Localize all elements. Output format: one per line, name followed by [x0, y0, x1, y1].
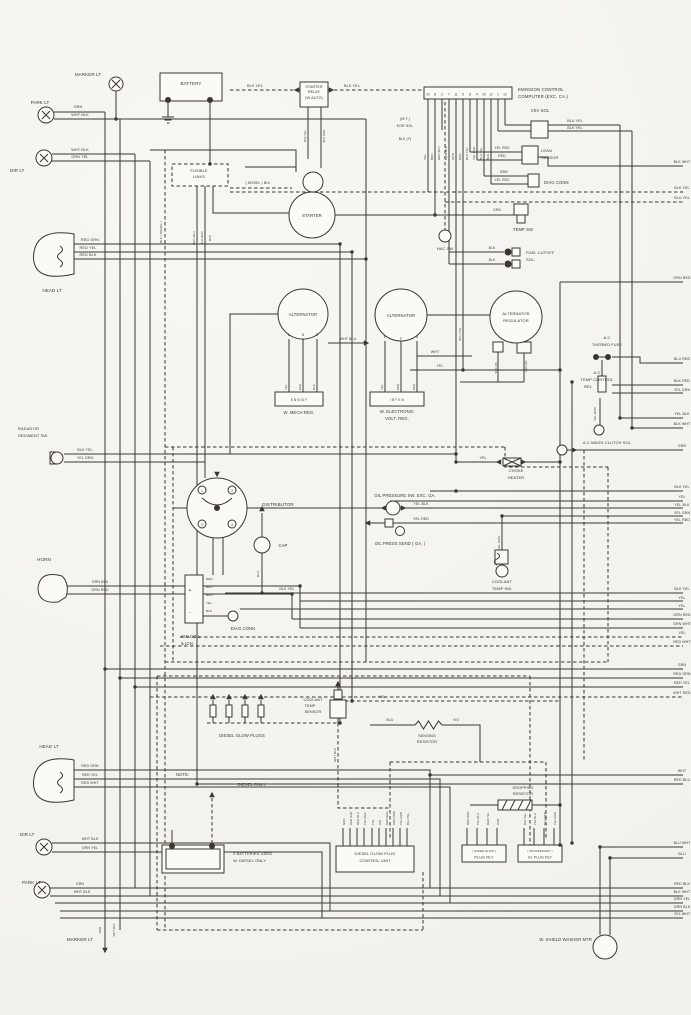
junction-dot	[618, 416, 621, 419]
wire-label: E B N IG F	[291, 398, 307, 402]
junction-dot	[260, 591, 263, 594]
wire-label: YEL GRN	[674, 511, 691, 515]
wire-label: YEL RED	[494, 178, 510, 182]
wire	[213, 186, 289, 213]
wire-label: WHT	[431, 350, 440, 354]
wire-label: RED BLU	[437, 146, 441, 160]
wire-label: BLK	[206, 609, 212, 613]
wire-label: YEL GRN	[674, 388, 691, 392]
elec-reg-label: W. ELECTRONIC	[380, 409, 414, 414]
wire-label: RED	[498, 154, 506, 158]
junction-dot	[570, 380, 573, 383]
wire-label: GRN	[98, 927, 102, 934]
wire-label: 1	[497, 93, 499, 97]
wire-label: 12	[503, 93, 507, 97]
sensing-resistor-label: SENSING	[418, 734, 436, 738]
diag-conn-box	[528, 174, 539, 187]
junction-dot	[364, 257, 367, 260]
fuel-cutoff-sol-2	[512, 260, 520, 268]
wire-label: GRN ORG	[392, 811, 396, 825]
wire-label: GRN	[493, 208, 501, 212]
diesel-only-label: DIESEL ONLY.	[238, 782, 267, 787]
wire-label: RED BLU	[192, 231, 196, 245]
wire-label: GRN	[678, 444, 687, 448]
thermo-fuse-end-2	[606, 355, 611, 360]
fuel-sol-pin-1	[505, 249, 511, 255]
wire-label: BLU YEL	[479, 147, 483, 160]
wire-label: YEL BLK	[413, 502, 429, 506]
wire-label: WHT BLK	[333, 748, 337, 762]
diagram-svg: MARKER LTPARK LTDIR LTHEAD LTGRNWHT BLKW…	[0, 0, 691, 1015]
hac-sw	[439, 230, 451, 242]
wire-label: BLU	[678, 852, 686, 856]
glow-plug-1	[210, 705, 216, 717]
wire-label: RED	[206, 577, 213, 581]
wire-label: BLK RED	[322, 130, 326, 143]
wire-label: BLK WHT	[674, 422, 691, 426]
ecu-label: EMISSION CONTROL	[518, 87, 564, 92]
fusible-links-label: FUSIBLE	[190, 168, 208, 173]
fuel-cutoff-label: FUEL CUTOFF	[526, 250, 555, 255]
arrow-marker	[294, 87, 299, 93]
head-lt-bottom-label: HEAD LT	[39, 744, 59, 749]
wire-label: GRN RED	[673, 613, 691, 617]
wire-label: WHT RED	[673, 691, 691, 695]
wire-label: BRN	[206, 593, 213, 597]
wire-label: WHT BLK	[112, 923, 116, 936]
coolant-sensor-label: COOLANT	[303, 698, 323, 702]
wire-label: RED GRN	[81, 238, 99, 242]
wire-label: RED YEL	[80, 246, 97, 250]
wire-label: YEL GRN	[593, 407, 597, 421]
wire-label: SOC (B)	[494, 362, 498, 373]
wire-label: I B F E B	[390, 398, 404, 402]
wire-label: BLK RED	[674, 379, 690, 383]
wire-label: YEL	[678, 495, 685, 499]
oil-press-send-label: OIL PRESS SEND ( GA. )	[375, 541, 426, 546]
wire-label: TEMP SW.	[492, 586, 512, 591]
diag-conn-2	[228, 611, 238, 621]
wire-label: BLK YEL	[674, 186, 689, 190]
oil-press-send-box	[385, 519, 393, 527]
wire-label: F	[400, 337, 402, 341]
alternator-1-label: ALTERNATOR	[289, 312, 317, 317]
coolant-sensor-stem	[334, 690, 342, 699]
wire-label: RED YEL	[674, 681, 690, 685]
wire-label: YEL	[678, 631, 685, 635]
battery2-terminal-2	[210, 844, 215, 849]
wire-label: ( DIESEL ) BLK	[246, 181, 271, 185]
wire-label: BLU	[387, 718, 394, 722]
wire-label: BLK YEL	[279, 587, 294, 591]
ign-coil-label: IGN COIL	[181, 634, 201, 639]
wire-label: GRN RED	[673, 276, 691, 280]
alt-reg-terminal-2	[517, 342, 531, 353]
ign-coil-box	[185, 575, 203, 623]
wire-label: BLK YEL	[77, 448, 92, 452]
temp-sw-box2	[517, 215, 525, 223]
wire-label: 4	[476, 93, 478, 97]
coolant-temp-sw-label: COOLANT	[492, 579, 512, 584]
wire-label: 10	[482, 93, 486, 97]
wiring-diagram-page: MARKER LTPARK LTDIR LTHEAD LTGRNWHT BLKW…	[0, 0, 691, 1015]
wire-label: BLK	[208, 235, 212, 241]
wire-label: RED GRN	[81, 764, 99, 768]
arrow-marker	[209, 792, 215, 797]
wire-label: RED BLK	[674, 882, 691, 886]
wire-label: GRN BLK	[92, 580, 109, 584]
wire-label: YEL	[380, 384, 384, 390]
wire-label: BLK YEL	[523, 813, 527, 825]
wire-label: GRN	[342, 818, 346, 825]
wire-label: PLUG RLY	[474, 856, 494, 860]
two-batteries-label: 2 BATTERIES USED	[233, 851, 272, 856]
wire-label: RED (B)	[524, 360, 528, 371]
temp-sw-label: TEMP SW	[513, 227, 533, 232]
wire-label: YEL RED	[494, 146, 510, 150]
choke-heater-label: CHOKE	[509, 468, 524, 473]
wire-label: YEL WHT	[674, 912, 691, 916]
wire-label: 8	[434, 93, 436, 97]
marker-lt-bottom-label: MARKER LT	[67, 937, 93, 942]
starter-solenoid	[303, 172, 323, 192]
junction-dot	[208, 162, 211, 165]
wire-label: BLK (Y)	[399, 137, 412, 141]
arrow-marker	[214, 472, 220, 477]
junction-dot	[608, 856, 611, 859]
radiator-sediment-label: RADIATOR	[18, 426, 39, 431]
wire-label: BLK WHT	[674, 890, 691, 894]
wire-label: RED	[458, 153, 462, 160]
arrow-marker	[496, 459, 501, 465]
alt-reg-terminal-1	[493, 342, 503, 352]
wire-label: YEL GRN	[497, 536, 501, 550]
radiator-sediment-sw	[51, 452, 63, 464]
junction-dot	[290, 592, 293, 595]
lean-sensor-box	[522, 146, 538, 164]
wire-label: RED BLU	[356, 812, 360, 825]
vsv-sol-label: VSV SOL	[531, 108, 550, 113]
arrow-marker	[401, 505, 406, 511]
wire	[62, 594, 292, 619]
oil-press-sender	[396, 527, 405, 536]
wire-label: RED WHT	[349, 811, 353, 825]
wire-label: GRN YEL	[71, 155, 88, 159]
oil-press-sw-label: OIL PRESSURE SW. EXC. GA.	[374, 493, 435, 498]
wire-label: YEL RED	[363, 812, 367, 825]
wire-label: E	[384, 335, 386, 339]
wire-label: BLU	[256, 571, 260, 577]
junction-dot	[461, 368, 464, 371]
junction-dot	[298, 584, 301, 587]
wire-label: BLK YEL	[303, 130, 307, 142]
wire-label: GRN	[678, 663, 687, 667]
wire-label: RED YEL	[486, 812, 490, 825]
wire-label: BLU RED	[543, 812, 547, 825]
glow-plug-relay-label: ( SUPER GLOW )	[472, 849, 496, 853]
wire-label: BLU YEL	[406, 813, 410, 825]
arrow-marker	[521, 459, 526, 465]
coolant-temp-sw-bulb	[496, 565, 508, 577]
wire-label: TEMP	[305, 704, 316, 708]
arrow-marker	[102, 948, 108, 953]
dashed-wire	[338, 723, 390, 808]
junction-dot	[338, 721, 341, 724]
wire-label: 2	[441, 93, 443, 97]
wire-label: 10	[426, 93, 430, 97]
wire-label: RESISTOR	[417, 740, 437, 744]
wire-label: 3	[201, 523, 203, 527]
wire-label: BLK	[312, 384, 316, 390]
junction-dot	[630, 426, 633, 429]
wire-label: YEL	[678, 604, 685, 608]
arrow-marker	[381, 505, 386, 511]
wire-label: REL	[584, 384, 593, 389]
thermo-fuse-end-1	[594, 355, 599, 360]
wire-label: 2	[231, 489, 233, 493]
arrow-marker	[329, 87, 334, 93]
junction-dot	[195, 782, 198, 785]
dir-lt-top-label: DIR LT	[10, 168, 25, 173]
junction-dot	[570, 841, 573, 844]
wire-label: BLU RED	[674, 357, 691, 361]
glow-plug-2	[226, 705, 232, 717]
wire-label: YEL	[678, 596, 685, 600]
diag-conn-label: DIAG CONN	[544, 180, 569, 185]
starter-relay-label: STARTER	[305, 85, 322, 89]
dir-lt-bottom-label: DIR LT	[20, 832, 35, 837]
wire-label: BLK YEL	[247, 84, 263, 88]
wire-label: YEL RED	[674, 518, 690, 522]
wire-label: 4	[231, 523, 233, 527]
junction-dot	[500, 514, 503, 517]
wire-label: RED BLK	[80, 253, 97, 257]
junction-dot	[558, 460, 561, 463]
wire-label: GRN BLK	[444, 146, 448, 160]
wire-label: YEL BLK	[674, 412, 690, 416]
ground-symbol	[162, 117, 174, 123]
wire-label: VOLT. REG.	[385, 416, 409, 421]
wire-label: RED BLU	[674, 778, 691, 782]
wire-label: SEDIMENT SW.	[18, 433, 48, 438]
diag-conn-2-label: DIAG CONN	[231, 626, 256, 631]
wire-label: WHT BLK	[71, 113, 89, 117]
battery-terminal-pos	[208, 98, 213, 103]
lean-sensor-label: LEAN	[541, 148, 552, 153]
wire-label: YEL BLU	[476, 813, 480, 825]
wire-label: YEL	[284, 384, 288, 390]
wire-label: B	[316, 333, 318, 337]
wire-label: RED YEL	[82, 773, 98, 777]
alternator-2-label: ALTERNATOR	[387, 313, 415, 318]
distributor-label: DISTRIBUTOR	[262, 502, 294, 507]
wire-label: BLK YEL	[465, 147, 469, 160]
temp-sw-box	[514, 204, 528, 215]
wire-label: SENSOR	[305, 710, 322, 714]
wire-label: GRN	[76, 882, 85, 886]
junction-dot	[114, 117, 117, 120]
marker-lt-top-label: MARKER LT	[75, 72, 101, 77]
wire-label: RELAY	[308, 90, 321, 94]
horn-label: HORN	[37, 557, 51, 562]
coolant-sw-plug	[495, 550, 508, 564]
fuel-cutoff-sol-1	[512, 248, 520, 256]
wire-label: TEMP CONTROL	[581, 377, 615, 382]
park-lt-top-label: PARK LT	[31, 100, 50, 105]
capacitor	[254, 537, 270, 553]
wire-label: YEL	[479, 456, 486, 460]
junction-dot	[433, 213, 436, 216]
alternator-regulator	[490, 291, 542, 343]
wire-label: B	[416, 335, 418, 339]
wire-label: WHT	[678, 769, 687, 773]
glow-plug-4	[258, 705, 264, 717]
note-label: NOTE:	[176, 772, 189, 777]
distributor-center	[215, 506, 220, 511]
wire-label: BLK RED	[200, 231, 204, 245]
wire-label: COMPUTER (EXC. CA.)	[518, 94, 568, 99]
mech-reg-label: W. MECH REG.	[284, 410, 315, 415]
wire-label: BLK ( DIESEL )	[159, 221, 163, 243]
wire-label: YEL RED	[413, 517, 429, 521]
wire-label: EGR SOL	[397, 124, 414, 128]
vsv-sol-box	[531, 121, 548, 138]
gl-plug-relay-label: ( INCANDESCENT )	[527, 849, 552, 853]
wire-label: BRN	[430, 153, 434, 160]
wire-label: 11	[454, 93, 458, 97]
wire-label: YEL BLU	[533, 813, 537, 825]
wire-label: BRN	[500, 170, 508, 174]
wire-label: YEL GRN	[553, 812, 557, 825]
wire-label: 5	[462, 93, 464, 97]
headlamp-top	[34, 233, 75, 276]
junction-dot	[454, 460, 457, 463]
wire-label: YEL BLK	[674, 503, 690, 507]
wire-label: BLK YEL	[674, 485, 689, 489]
headlamp-bottom	[34, 759, 75, 802]
wire-label: +	[188, 588, 191, 594]
coolant-sensor-body	[330, 700, 346, 718]
wire-label: SENSOR	[541, 155, 559, 160]
wire-label: & IGN	[181, 641, 193, 646]
wire-label: BLK	[489, 258, 496, 262]
wire	[74, 779, 440, 896]
ac-clutch-sol-label: A.C MAGN CLUTCH SOL	[583, 440, 632, 445]
alt-regulator-label: ALTERNATOR	[502, 311, 529, 316]
washer-motor-label: W. SHIELD WASHER MTR	[539, 937, 592, 942]
wire-label: 7	[448, 93, 450, 97]
clutch-sol-coil	[557, 445, 567, 455]
wire-label: YEL	[423, 154, 427, 160]
wire-label: RED	[298, 384, 302, 390]
wire	[74, 787, 450, 903]
wire-label: GRN RED	[466, 811, 470, 825]
wire-label: 12	[489, 93, 493, 97]
wire-label: BLU YEL	[674, 196, 689, 200]
wire-label: THERMO FUSE	[592, 342, 622, 347]
wire-label: WHT BLK	[82, 837, 99, 841]
wire-label: GRN BLK	[674, 905, 691, 909]
arrow-marker	[572, 447, 577, 453]
horn-body	[38, 575, 67, 603]
starter-label: STARTER	[302, 213, 322, 218]
junction-dot	[133, 685, 136, 688]
wire-label: GRN RED	[91, 588, 109, 592]
wire-label: 1	[201, 489, 203, 493]
junction-dot	[103, 667, 106, 670]
wire	[230, 314, 278, 454]
park-lt-bottom-label: PARK LT	[22, 880, 41, 885]
wire-label: GRN YEL	[82, 846, 98, 850]
ac-temp-control-label: A.C	[594, 370, 601, 375]
junction-dot	[558, 803, 561, 806]
wire-label: CONTROL UNIT	[359, 858, 391, 863]
cap-label: CAP	[279, 543, 288, 548]
wire-label: WHT BLK	[74, 890, 91, 894]
battery-box	[160, 73, 222, 101]
wire-label: BLK WHT	[674, 160, 691, 164]
wire-label: YEL	[436, 364, 443, 368]
wire-label: RESISTOR	[513, 792, 533, 796]
junction-dot	[428, 773, 431, 776]
wire-label: YEL GRN	[399, 812, 403, 825]
junction-dot	[558, 368, 561, 371]
wire-label: BLK	[489, 246, 496, 250]
junction-dot	[454, 452, 457, 455]
wire-label: BLU WHT	[674, 841, 691, 845]
battery-label: BATTERY	[180, 81, 201, 86]
wire-label: -	[189, 610, 191, 616]
glow-plug-3	[242, 705, 248, 717]
wire-label: GRN	[396, 384, 400, 391]
wire-label: GL PLUG RLY	[528, 856, 553, 860]
wire	[538, 157, 683, 166]
head-lt-top-label: HEAD LT	[42, 288, 62, 293]
ac-relay-bulb	[594, 425, 604, 435]
wire-label: WHT BLK	[71, 148, 89, 152]
wire-label: LINKS	[193, 174, 205, 179]
wire-label: RED GRN	[673, 672, 691, 676]
wire	[612, 357, 683, 363]
wire-label: BLK YEL	[344, 84, 360, 88]
battery-terminal-neg	[166, 98, 171, 103]
glow-plugs-label: DIESEL GLOW PLUGS	[219, 733, 265, 738]
junction-dot	[454, 489, 457, 492]
junction-dot	[118, 676, 121, 679]
wire-label: HEATER	[508, 475, 525, 480]
wire-label: YEL	[206, 601, 212, 605]
wire-label: (W-AUTO)	[305, 96, 323, 100]
fuel-sol-pin-2	[505, 261, 511, 267]
wire-label: GRN WHT	[673, 622, 691, 626]
wire-label: SOL.	[526, 257, 536, 262]
wire-label: GRN	[451, 153, 455, 160]
wire-label: WHT	[496, 818, 500, 825]
wire-label: GRN YEL	[674, 897, 690, 901]
wire-label: YEL RED	[472, 146, 476, 160]
wire-label: REGULATOR	[503, 318, 528, 323]
junction-dot	[598, 845, 601, 848]
wire-label: W. DIESEL ONLY	[233, 858, 266, 863]
battery2-terminal-1	[170, 844, 175, 849]
wire-label: BLU YEL	[458, 327, 462, 340]
junction-dot	[338, 242, 341, 245]
wire	[442, 725, 480, 762]
junction-dot	[350, 699, 353, 702]
oil-pressure-sw	[386, 501, 400, 515]
sensing-resistor-zigzag	[415, 721, 442, 729]
wire-label: RED WHT	[81, 781, 99, 785]
